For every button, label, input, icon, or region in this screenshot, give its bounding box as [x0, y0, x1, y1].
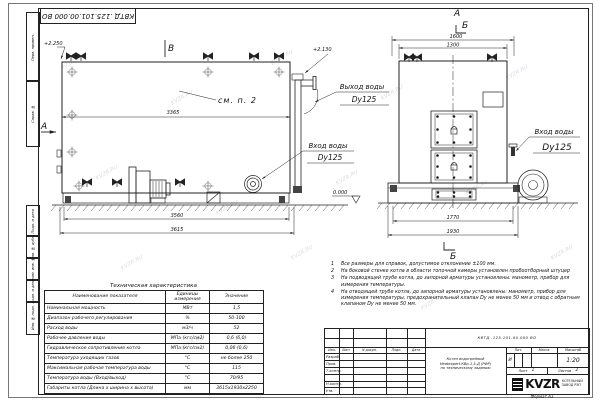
note-item: 1 Все размеры для справок, допустимое от…: [331, 262, 584, 268]
table-row: Номинальная мощностьМВт1,5: [45, 304, 264, 314]
note-number: 2: [331, 269, 341, 275]
skid-feet: [65, 196, 285, 203]
massa-header: Масса: [531, 347, 557, 353]
section-label-a-top: А: [453, 9, 460, 19]
see-note-text: см. п. 2: [218, 96, 257, 105]
cell-value: не более 250: [210, 354, 264, 364]
leaders-side: [41, 40, 389, 203]
format-note: Формат А3: [498, 394, 586, 399]
listov-value: 2: [575, 368, 578, 373]
dim-1930-text: 1930: [447, 229, 460, 235]
cell-units: м3/ч: [166, 324, 210, 334]
top-valves-side: [67, 53, 284, 61]
grid-line: [325, 338, 425, 339]
list-cell: Лист 1: [506, 367, 547, 374]
col-header-units: Единицы измерения: [166, 291, 210, 304]
side-view-texts: 3365 3560 3615 см. п. 2 В А +2.250 +2.13…: [40, 41, 385, 233]
title-line3: по техническому заданию: [441, 366, 491, 371]
cell-units: МПа (кгс/см2): [166, 334, 210, 344]
inlet-flange-front: [509, 144, 517, 156]
cell-name: Рабочее давление воды: [45, 334, 166, 344]
side-view: 3365 3560 3615 см. п. 2 В А +2.250 +2.13…: [40, 40, 389, 235]
grid-line: [522, 353, 523, 367]
burner-unit: [129, 167, 170, 203]
table-row: Рабочее давление водыМПа (кгс/см2)0,6 (6…: [45, 334, 264, 344]
note-item: 3 На подводящей трубе котла, до запорной…: [331, 276, 584, 288]
table-row: Расход водым3/ч52: [45, 324, 264, 334]
cell-units: °С: [166, 354, 210, 364]
elevation-zero: 0.000: [333, 190, 347, 196]
tech-table: Наименование показателя Единицы измерени…: [44, 290, 264, 394]
tech-characteristics: Техническая характеристика Наименование …: [44, 283, 263, 394]
cell-units: °С: [166, 374, 210, 384]
cell-units: мм: [166, 384, 210, 394]
lifting-marks-side: [67, 67, 285, 192]
base-access-panel: [432, 189, 476, 200]
cell-value: 52: [210, 324, 264, 334]
kvzr-logo-icon: [512, 378, 523, 391]
cell-value: 0,06 (0,6): [210, 344, 264, 354]
boiler-body-side: [62, 62, 290, 193]
inlet-water-label-front: Вход воды: [534, 128, 574, 136]
cell-name: Габариты котла (Длина х ширина х высота): [45, 384, 166, 394]
col-podp: Подп.: [386, 347, 407, 353]
col-header-value: Значение: [210, 291, 264, 304]
dim-3365-text: 3365: [167, 110, 180, 116]
cell-value: 70/95: [210, 374, 264, 384]
cell-name: Гидравлическое сопротивление котла: [45, 344, 166, 354]
grid-line: [325, 374, 425, 375]
note-number: 4: [331, 290, 341, 309]
row-utv: Утв.: [326, 387, 353, 394]
doc-number: КВТД .125.101.00.000 ВО: [425, 329, 589, 347]
note-item: 4 На отводящей трубе котла, до запорной …: [331, 290, 584, 309]
list-label: Лист: [519, 369, 528, 373]
table-title: Техническая характеристика: [44, 283, 263, 289]
drawing-sheet: { "doc_number": "КВТД .125.101.00.000 ВО…: [0, 0, 600, 400]
col-data: Дата: [407, 347, 425, 353]
front-view-texts: 1600 1300 1770 1930 А Б Б Вход воды Dy12…: [447, 9, 574, 262]
note-item: 2 На боковой стенке котла в области топо…: [331, 269, 584, 275]
section-label-b-top: Б: [462, 21, 468, 31]
drain-box: [207, 192, 220, 203]
fan-blower: [518, 170, 548, 203]
kvzr-logo-subtext: КОТЕЛЬНЫЙ ЗАВОД РЭП: [562, 380, 583, 388]
boiler-skid: [63, 193, 289, 203]
listov-cell: Листов 2: [547, 367, 589, 374]
note-text: На боковой стенке котла в области топочн…: [341, 269, 584, 275]
company-logo-cell: KVZR КОТЕЛЬНЫЙ ЗАВОД РЭП: [506, 374, 589, 394]
row-tkontr: Т.контр.: [326, 367, 353, 374]
title-block: КВТД .125.101.00.000 ВО Котел водогрейны…: [324, 328, 590, 395]
note-number: 3: [331, 276, 341, 288]
table-row: Температура воды (Вход/выход)°С70/95: [45, 374, 264, 384]
table-row: Температура уходящих газов°Сне более 250: [45, 354, 264, 364]
table-row: Габариты котла (Длина х ширина х высота)…: [45, 384, 264, 394]
list-value: 1: [532, 368, 535, 373]
cell-value: 115: [210, 364, 264, 374]
table-row: Гидравлическое сопротивление котлаМПа (к…: [45, 344, 264, 354]
table-header-row: Наименование показателя Единицы измерени…: [45, 291, 264, 304]
marks-front: [444, 25, 580, 250]
cell-name: Максимальная рабочая температура воды: [45, 364, 166, 374]
elevation-top: +2.250: [44, 41, 63, 47]
listov-label: Листов: [558, 369, 571, 373]
ground-front: [377, 203, 578, 209]
col-docnum: N докум.: [353, 347, 386, 353]
row-prov: Пров.: [326, 360, 353, 367]
front-view: 1600 1300 1770 1930 А Б Б Вход воды Dy12…: [377, 9, 580, 262]
inlet-flange-side: [245, 176, 262, 193]
kvzr-logo-text: KVZR: [525, 377, 560, 391]
drawing-title: Котел водогрейный Heatexpert-КВр-1,5-Д (…: [425, 347, 506, 381]
lower-door: [431, 150, 477, 183]
inlet-water-label-side: Вход воды: [308, 142, 348, 150]
cell-value: 0,6 (6,0): [210, 334, 264, 344]
view-label-b: В: [168, 44, 174, 54]
grid-line: [514, 353, 515, 367]
dim-3615-text: 3615: [171, 227, 184, 233]
lit-value: И: [506, 353, 514, 367]
control-panel: [483, 92, 503, 107]
inlet-dn-label-side: Dy125: [318, 153, 343, 162]
ground-side: [51, 205, 348, 211]
table-row: Диапазон рабочего регулирования%50-100: [45, 314, 264, 324]
col-header-name: Наименование показателя: [45, 291, 166, 304]
cell-name: Температура уходящих газов: [45, 354, 166, 364]
masshtab-value: 1:20: [557, 353, 589, 367]
cell-name: Диапазон рабочего регулирования: [45, 314, 166, 324]
dim-1300-text: 1300: [447, 43, 460, 49]
dim-3560-text: 3560: [171, 213, 184, 219]
cell-units: %: [166, 314, 210, 324]
outlet-water-label: Выход воды: [340, 83, 385, 91]
note-text: На отводящей трубе котла, до запорной ар…: [341, 290, 584, 309]
notes-list: 1 Все размеры для справок, допустимое от…: [331, 262, 584, 310]
cell-name: Номинальная мощность: [45, 304, 166, 314]
cell-value: 50-100: [210, 314, 264, 324]
cell-name: Температура воды (Вход/выход): [45, 374, 166, 384]
note-text: На подводящей трубе котла, до запорной а…: [341, 276, 584, 288]
cell-name: Расход воды: [45, 324, 166, 334]
note-text: Все размеры для справок, допустимое откл…: [341, 262, 584, 268]
inlet-dn-label-front: Dy125: [542, 143, 572, 153]
table-row: Максимальная рабочая температура воды°С1…: [45, 364, 264, 374]
outlet-pipe: [292, 74, 318, 193]
cell-units: МПа (кгс/см2): [166, 344, 210, 354]
row-razrab: Разраб.: [326, 353, 353, 360]
outlet-dn-label: Dy125: [352, 95, 377, 104]
section-label-a: А: [40, 122, 47, 132]
elevation-outlet: +2.130: [313, 47, 332, 53]
cell-value: 1,5: [210, 304, 264, 314]
dim-1600-text: 1600: [450, 34, 463, 40]
logo-sub-line2: ЗАВОД РЭП: [562, 384, 583, 388]
wall-brackets: [57, 150, 61, 173]
cell-units: МВт: [166, 304, 210, 314]
cell-units: °С: [166, 364, 210, 374]
upper-door: [431, 111, 477, 148]
cell-value: 3615х1930х2250: [210, 384, 264, 394]
note-number: 1: [331, 262, 341, 268]
dim-1770-text: 1770: [447, 215, 460, 221]
section-label-b-bottom: Б: [450, 252, 456, 262]
